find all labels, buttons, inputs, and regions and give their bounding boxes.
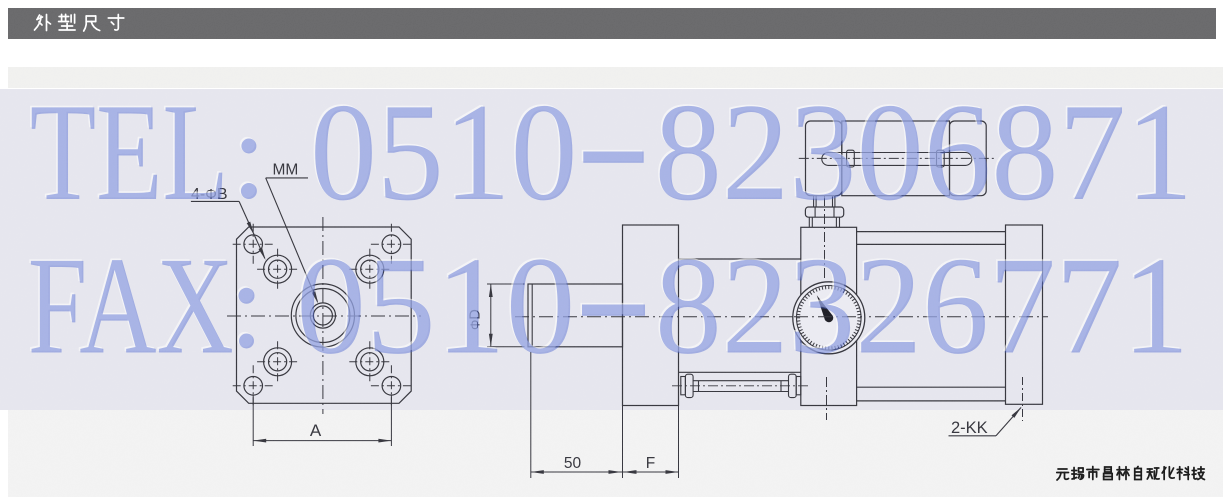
svg-text:0510: 0510	[296, 229, 575, 384]
svg-text:0510: 0510	[310, 75, 577, 230]
svg-text:82306871: 82306871	[655, 75, 1194, 230]
svg-text:FAX: FAX	[28, 229, 234, 384]
svg-text:TEL: TEL	[30, 75, 229, 230]
svg-text:82326771: 82326771	[655, 229, 1189, 384]
